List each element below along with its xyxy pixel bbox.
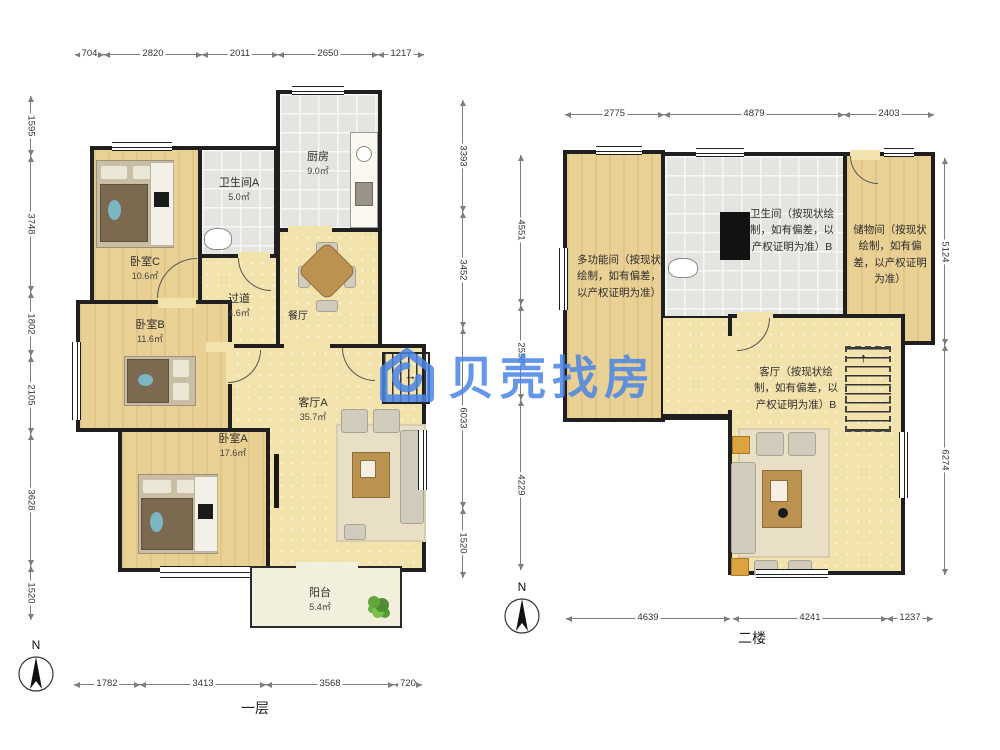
dim-f1-top-4: 1217 [378,54,424,55]
livingB-stairs [845,346,891,432]
floor1-title: 一层 [215,698,295,718]
opening-balcony [296,562,358,574]
livingA-tv [274,454,279,508]
dim-f1-bottom-3: 720 [394,684,422,685]
dim-f1-top-0: 704 [75,54,104,55]
label-balcony: 阳台5.4㎡ [288,586,352,613]
floor2-compass: N [500,580,544,642]
bedB-deco [138,374,153,386]
opening-kitchen-dining [288,226,332,236]
dim-f1-left-5: 1520 [30,566,31,620]
window-bathB-top [696,148,744,157]
dim-f2-top-2: 2403 [844,114,934,115]
floor1-compass: N [14,638,58,700]
floor2-title: 二楼 [712,628,792,648]
dim-f1-right-0: 3393 [462,100,463,212]
livingA-armchair2 [373,409,400,433]
dim-f1-left-2: 1802 [30,292,31,356]
bedC-tv [154,192,169,207]
label-bathA: 卫生间A5.0㎡ [206,176,272,203]
opening-connector-living [726,336,736,410]
watermark: 贝壳找房 [378,342,656,408]
beike-logo-icon [378,346,436,404]
label-livingA: 客厅A35.7㎡ [278,396,348,423]
dim-f2-right-1: 6274 [944,345,945,575]
livingB-table-deco [770,480,788,502]
kitchen-sink [356,146,372,162]
window-livingB-right [899,432,908,498]
bedC-runner [108,200,121,220]
north-arrow-icon [16,653,56,695]
dim-f1-right-3: 1520 [462,508,463,578]
dim-f1-left-3: 2105 [30,356,31,434]
bedC-pillow [100,165,128,180]
label-livingB: 客厅（按现状绘制，如有偏差，以产权证明为准）B [750,364,842,413]
dim-f1-left-0: 1595 [30,96,31,156]
window-multi-top [596,146,642,155]
label-storage: 储物间（按现状绘制，如有偏差，以产权证明为准） [850,222,930,287]
room-connector [663,318,732,418]
dim-f1-top-2: 2011 [202,54,278,55]
window-multi-left [559,248,568,310]
dim-f1-top-1: 2820 [104,54,202,55]
bedB-pillow2 [172,382,190,401]
north-arrow-icon-2 [502,595,542,637]
bedC-blanket [100,184,148,242]
bedA-pillow [142,479,172,494]
bathB-cabinet [720,212,750,260]
opening-bedC-door [158,298,196,308]
bedA-blanket [141,498,193,550]
window-kitchen-top [292,86,344,95]
label-dining: 餐厅 [270,310,326,324]
bathA-toilet [204,228,232,250]
livingB-armchair2 [788,432,816,456]
dim-f1-left-4: 3628 [30,434,31,566]
dim-f1-bottom-2: 3568 [266,684,394,685]
stairs2-arrow-icon: ↑ [860,350,867,365]
bedB-pillow [172,359,190,378]
dim-f1-left-1: 3748 [30,156,31,292]
dim-f1-bottom-1: 3413 [140,684,266,685]
watermark-brand-text: 贝壳找房 [448,342,656,408]
label-bedA: 卧室A17.6㎡ [198,432,268,459]
label-multi: 多功能间（按现状绘制，如有偏差，以产权证明为准） [573,252,665,301]
window-living-right [418,430,427,490]
dim-f1-right-1: 3452 [462,212,463,328]
dim-f2-bottom-1: 4241 [733,618,887,619]
label-bedC: 卧室C10.6㎡ [110,255,180,282]
dim-f2-left-0: 4551 [520,155,521,305]
dim-f2-left-2: 4229 [520,400,521,570]
livingA-table-deco [360,460,376,478]
compass-n-label: N [14,638,58,652]
livingB-sofa [731,462,756,554]
label-hall: 过道4.6㎡ [206,292,272,319]
kitchen-stove [355,182,373,206]
livingB-kettle [778,508,788,518]
wall-connector-bottom [661,414,732,420]
label-bedB: 卧室B11.6㎡ [114,318,186,345]
dim-f2-right-0: 5124 [944,158,945,345]
window-bedB-left [72,342,81,420]
floorplan-canvas: → 厨房9.0㎡ 卫生间A5.0㎡ 卧室C10.6㎡ 过道4.6㎡ 餐厅 卧室B… [0,0,1000,750]
window-bedC-top [112,142,172,151]
dim-f2-bottom-0: 4639 [566,618,730,619]
bedA-runner [150,512,163,532]
dim-f2-top-0: 2775 [565,114,664,115]
balcony-plant-icon [368,596,380,608]
window-storage-top [884,148,914,157]
bathB-toilet [668,258,698,278]
bedA-tv [198,504,213,519]
label-bathB: 卫生间（按现状绘制，如有偏差，以产权证明为准）B [748,206,836,255]
livingB-side-table2 [731,558,749,576]
label-kitchen: 厨房9.0㎡ [282,150,354,177]
livingB-armchair [756,432,784,456]
dim-f1-top-3: 2650 [278,54,378,55]
window-livingB-bottom [756,569,828,578]
dim-f2-top-1: 4879 [664,114,844,115]
dim-f2-bottom-2: 1237 [887,618,933,619]
livingB-side-table [732,436,750,454]
opening-dining-living [284,342,330,352]
livingA-ottoman [344,524,366,540]
window-bedA-bay [160,566,250,578]
dim-f1-bottom-0: 1782 [74,684,140,685]
compass-n-label-2: N [500,580,544,594]
